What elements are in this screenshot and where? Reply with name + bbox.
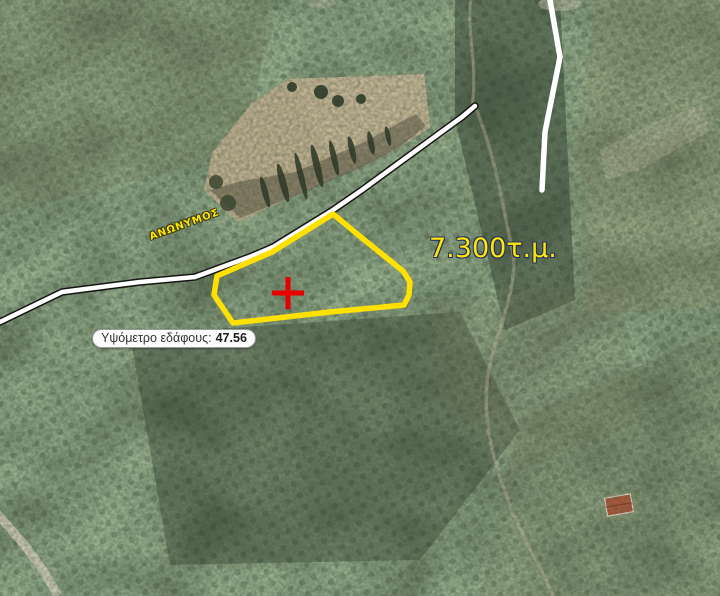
map-overlays xyxy=(0,0,720,596)
elevation-tooltip-value: 47.56 xyxy=(216,331,247,345)
elevation-tooltip: Υψόμετρο εδάφους:47.56 xyxy=(92,329,256,348)
secondary-road xyxy=(542,0,560,190)
location-marker-cross xyxy=(272,277,304,309)
main-road xyxy=(0,106,475,322)
parcel-boundary[interactable] xyxy=(214,214,410,323)
elevation-tooltip-label: Υψόμετρο εδάφους: xyxy=(101,331,212,345)
map-viewport[interactable]: ΑΝΩΝΥΜΟΣ 7.300τ.μ. Υψόμετρο εδάφους:47.5… xyxy=(0,0,720,596)
parcel-area-label: 7.300τ.μ. xyxy=(429,233,557,264)
